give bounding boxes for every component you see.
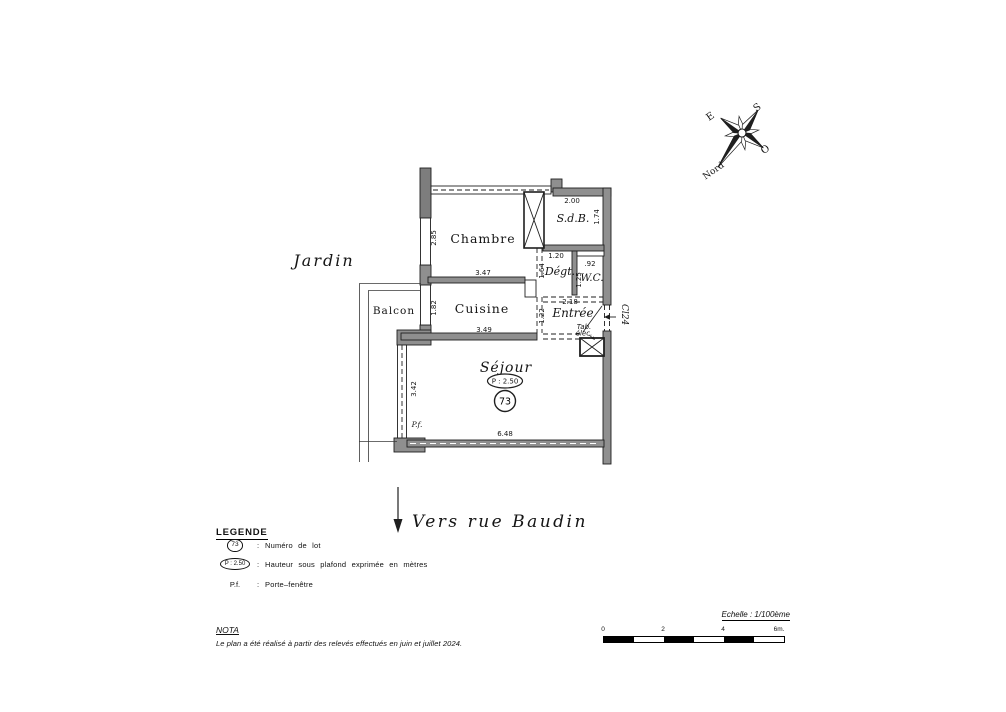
legend-item-pf: P.f. : Porte–fenêtre: [216, 580, 313, 589]
dim-entree-height: 1.22: [538, 308, 546, 324]
compass-label-north: Nord: [701, 160, 726, 182]
floor-plan-drawing: 3.47 2.85 2.00 1.74 1.20 1.64 .92 1.25 3…: [0, 0, 1006, 712]
wall-sejour-top: [401, 333, 537, 340]
balcony-label: Balcon: [373, 305, 415, 317]
wall-chambre-cuisine: [428, 277, 525, 283]
dim-chambre-height: 2.85: [430, 230, 438, 246]
dim-cuisine-width: 3.49: [476, 326, 492, 334]
wall-sdb-bottom: [543, 245, 604, 251]
legend: LEGENDE 73 : Numéro de lot P : 2.50 : Ha…: [216, 522, 516, 602]
room-labels-layer: Chambre S.d.B. Dégt. W.C. Cuisine Entrée…: [290, 212, 603, 376]
chambre-window: [421, 218, 431, 265]
dim-wc-width: .92: [584, 260, 595, 268]
nota: NOTA Le plan a été réalisé à partir des …: [216, 620, 536, 648]
wc-door-band: [577, 251, 604, 256]
scale-label: Echelle : 1/100ème: [722, 610, 791, 621]
nota-title: NOTA: [216, 625, 239, 635]
entree-sejour-opening: [543, 334, 580, 339]
legend-pf-text: Porte–fenêtre: [265, 580, 313, 589]
room-label-chambre: Chambre: [450, 231, 515, 246]
room-label-entree: Entrée: [551, 306, 593, 320]
scale-segment: [634, 637, 664, 642]
dim-sdb-height: 1.74: [593, 209, 601, 225]
walls-dark-layer: [420, 168, 431, 218]
dim-sejour-height: 3.42: [410, 381, 418, 397]
legend-colon: :: [254, 541, 262, 550]
dim-entree-width: 2.18: [562, 298, 578, 306]
dim-chambre-width: 3.47: [475, 269, 491, 277]
legend-item-ceiling: P : 2.50 : Hauteur sous plafond exprimée…: [216, 558, 427, 570]
scale-tick-4: 4: [721, 626, 725, 633]
scale-segment: [604, 637, 634, 642]
room-label-degt: Dégt.: [544, 265, 575, 278]
garden-label: Jardin: [290, 251, 354, 270]
legend-lot-circle: 73: [227, 539, 242, 552]
scale-bar: Echelle : 1/100ème 0 2 4 6m.: [598, 610, 793, 646]
floor-plan-page: 3.47 2.85 2.00 1.74 1.20 1.64 .92 1.25 3…: [0, 0, 1006, 712]
scale-rule: [603, 636, 785, 643]
scale-tick-0: 0: [601, 626, 605, 633]
wall-sdb-top: [553, 188, 611, 196]
scale-segment: [694, 637, 724, 642]
wall-left-top-stub: [420, 168, 431, 218]
scale-tick-2: 2: [661, 626, 665, 633]
legend-colon: :: [254, 560, 262, 569]
dim-sejour-width: 6.48: [497, 430, 513, 438]
compass-rose: S E O Nord: [697, 95, 780, 182]
room-label-sdb: S.d.B.: [557, 212, 590, 225]
door-ref-label: Cl24: [619, 304, 629, 325]
compass-label-east: E: [704, 110, 716, 123]
scale-segment: [754, 637, 784, 642]
cuisine-window: [421, 285, 431, 325]
ceiling-height-value: P : 2.50: [492, 378, 519, 386]
scale-segment: [724, 637, 754, 642]
room-label-cuisine: Cuisine: [455, 301, 509, 316]
lot-markers: P : 2.50 73 P.f.: [411, 374, 523, 429]
nota-text: Le plan a été réalisé à partir des relev…: [216, 639, 536, 648]
legend-lot-text: Numéro de lot: [265, 541, 321, 550]
dim-degt-width: 1.20: [548, 252, 564, 260]
legend-item-lot: 73 : Numéro de lot: [216, 539, 321, 552]
scale-segment: [664, 637, 694, 642]
cuisine-pier: [525, 280, 536, 297]
dim-sdb-width: 2.00: [564, 197, 580, 205]
elec-panel-label-2: élec.: [576, 330, 593, 338]
legend-ceiling-text: Hauteur sous plafond exprimée en mètres: [265, 560, 427, 569]
lot-number-value: 73: [499, 397, 511, 408]
porte-fenetre-label: P.f.: [411, 420, 423, 429]
legend-ceiling-ellipse: P : 2.50: [220, 558, 251, 570]
compass-label-south: S: [752, 101, 764, 114]
legend-pf-symbol: P.f.: [230, 580, 240, 589]
dim-cuisine-height: 1.82: [430, 300, 438, 316]
scale-tick-6: 6m.: [774, 626, 785, 633]
legend-colon: :: [254, 580, 262, 589]
room-label-wc: W.C.: [580, 272, 603, 284]
sejour-porte-fenetre-wall: [398, 345, 407, 438]
